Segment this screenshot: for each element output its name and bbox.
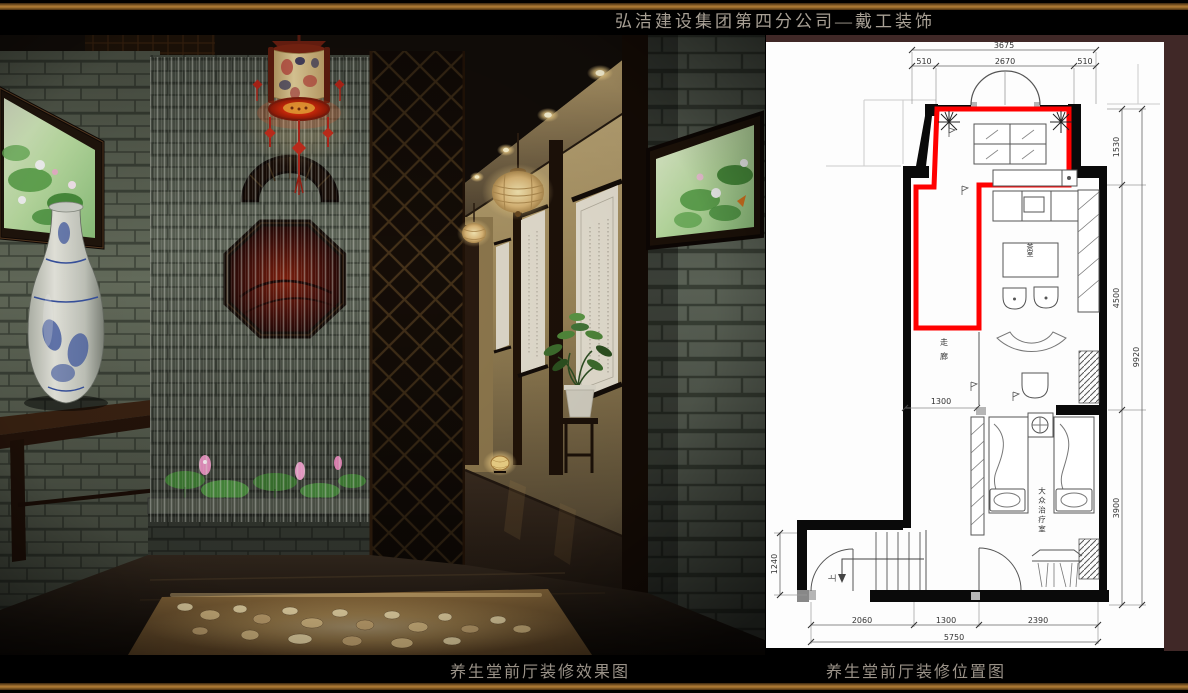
svg-text:9920: 9920 xyxy=(1132,347,1141,367)
tea-room-cabinet xyxy=(993,191,1081,221)
svg-text:2670: 2670 xyxy=(995,57,1015,66)
reception-counter xyxy=(993,170,1077,186)
treatment-room-label: 大众治疗室 xyxy=(1037,486,1046,535)
top-border-bar xyxy=(0,3,1188,10)
bottom-border-bar xyxy=(0,683,1188,690)
massage-bed-right xyxy=(1054,417,1094,513)
svg-text:2390: 2390 xyxy=(1028,616,1048,625)
stairs-up-label: 上 xyxy=(828,574,837,582)
floor-plan-sheet: 茶室 走廊 1300 xyxy=(766,42,1164,648)
svg-text:1300: 1300 xyxy=(931,397,951,406)
render-caption: 养生堂前厅装修效果图 xyxy=(450,658,630,682)
wall-shelving xyxy=(1078,190,1099,312)
plan-caption: 养生堂前厅装修位置图 xyxy=(826,658,1006,682)
rendering-scene xyxy=(0,35,765,655)
svg-text:2060: 2060 xyxy=(852,616,872,625)
svg-text:1530: 1530 xyxy=(1112,137,1121,157)
svg-text:1300: 1300 xyxy=(936,616,956,625)
tea-table: 茶室 xyxy=(1003,242,1058,277)
sink-fixture xyxy=(1028,413,1053,437)
company-title: 弘洁建设集团第四分公司—戴工装饰 xyxy=(615,7,935,32)
treatment-shelving xyxy=(971,417,984,535)
svg-text:510: 510 xyxy=(1077,57,1092,66)
fan-room-chair xyxy=(1022,373,1048,398)
plan-frame-top xyxy=(766,35,1188,42)
svg-text:5750: 5750 xyxy=(944,633,964,642)
hatched-block-upper xyxy=(1079,351,1099,403)
hatched-block-lower xyxy=(1079,539,1099,579)
interior-rendering xyxy=(0,35,765,655)
svg-text:1240: 1240 xyxy=(770,554,779,574)
svg-text:3675: 3675 xyxy=(994,42,1014,50)
plant-symbol-right xyxy=(1050,111,1072,133)
plan-frame-right xyxy=(1164,35,1188,651)
svg-text:3900: 3900 xyxy=(1112,498,1121,518)
svg-text:4500: 4500 xyxy=(1112,288,1121,308)
tea-room-label: 茶室 xyxy=(1026,242,1034,257)
svg-text:510: 510 xyxy=(916,57,931,66)
floor-plan-drawing: 茶室 走廊 1300 xyxy=(766,42,1164,648)
screen-table xyxy=(974,124,1046,164)
presentation-board: 弘洁建设集团第四分公司—戴工装饰 xyxy=(0,0,1188,693)
massage-bed-left xyxy=(989,417,1028,513)
corridor-label: 走廊 xyxy=(940,338,949,366)
vignette-overlay xyxy=(0,35,765,655)
